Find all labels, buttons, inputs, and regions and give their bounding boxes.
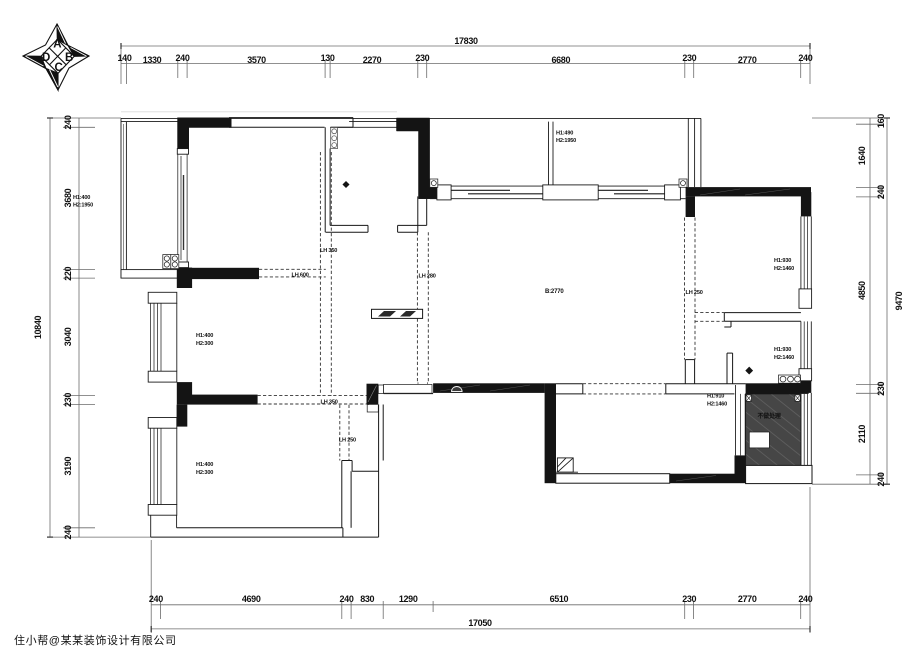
svg-text:H2:300: H2:300 [196,470,213,476]
svg-text:230: 230 [682,594,696,604]
svg-text:3680: 3680 [63,188,73,207]
svg-text:H2:1950: H2:1950 [556,138,576,144]
svg-text:220: 220 [63,266,73,280]
svg-text:1640: 1640 [857,146,867,165]
svg-text:3190: 3190 [63,457,73,476]
svg-text:830: 830 [360,594,374,604]
svg-text:240: 240 [876,185,886,199]
svg-text:LH 350: LH 350 [321,399,338,405]
svg-text:H1:490: H1:490 [556,131,573,137]
svg-text:230: 230 [876,381,886,395]
svg-text:230: 230 [415,53,429,63]
svg-text:240: 240 [340,594,354,604]
svg-text:B: B [65,52,73,64]
svg-text:H1:910: H1:910 [707,394,724,400]
svg-text:LH 350: LH 350 [320,248,337,254]
svg-text:H2:1950: H2:1950 [73,203,93,209]
svg-text:LH 250: LH 250 [339,438,356,444]
svg-text:160: 160 [876,114,886,128]
svg-text:17050: 17050 [468,618,492,628]
svg-text:2110: 2110 [857,425,867,443]
svg-text:9470: 9470 [894,291,904,310]
svg-text:H2:1460: H2:1460 [774,355,794,361]
svg-text:2770: 2770 [738,594,757,604]
svg-text:240: 240 [63,115,73,129]
svg-text:H1:400: H1:400 [196,333,213,339]
svg-text:LH 250: LH 250 [686,290,703,296]
svg-text:3570: 3570 [247,55,266,65]
svg-text:10840: 10840 [33,316,43,340]
svg-text:LH 600: LH 600 [292,272,309,278]
svg-text:2770: 2770 [738,55,757,65]
svg-text:H2:1460: H2:1460 [707,402,727,408]
svg-text:230: 230 [63,393,73,407]
svg-text:H2:300: H2:300 [196,341,213,347]
svg-text:2270: 2270 [363,55,382,65]
svg-text:住小帮@某某装饰设计有限公司: 住小帮@某某装饰设计有限公司 [14,633,177,647]
svg-text:LH 280: LH 280 [419,274,436,280]
svg-text:1330: 1330 [143,55,162,65]
svg-text:4690: 4690 [242,594,261,604]
svg-text:C: C [54,62,62,74]
svg-text:H1:930: H1:930 [774,347,791,353]
svg-text:240: 240 [798,594,812,604]
svg-text:H2:1460: H2:1460 [774,266,794,272]
svg-text:240: 240 [798,53,812,63]
svg-text:A: A [53,38,61,50]
svg-text:240: 240 [149,594,163,604]
svg-text:140: 140 [118,53,132,63]
svg-text:4850: 4850 [857,281,867,300]
svg-text:H1:930: H1:930 [774,258,791,264]
svg-text:230: 230 [682,53,696,63]
svg-text:D: D [42,52,50,64]
svg-text:240: 240 [176,53,190,63]
svg-text:1290: 1290 [399,594,418,604]
svg-text:240: 240 [63,525,73,539]
svg-text:B:2770: B:2770 [545,289,564,295]
svg-text:3040: 3040 [63,327,73,346]
svg-text:H1:400: H1:400 [73,195,90,201]
svg-text:H1:400: H1:400 [196,462,213,468]
svg-text:6680: 6680 [551,55,570,65]
svg-text:17830: 17830 [454,36,478,46]
svg-text:130: 130 [321,53,335,63]
svg-text:不做处理: 不做处理 [758,412,781,420]
svg-text:6510: 6510 [550,594,569,604]
